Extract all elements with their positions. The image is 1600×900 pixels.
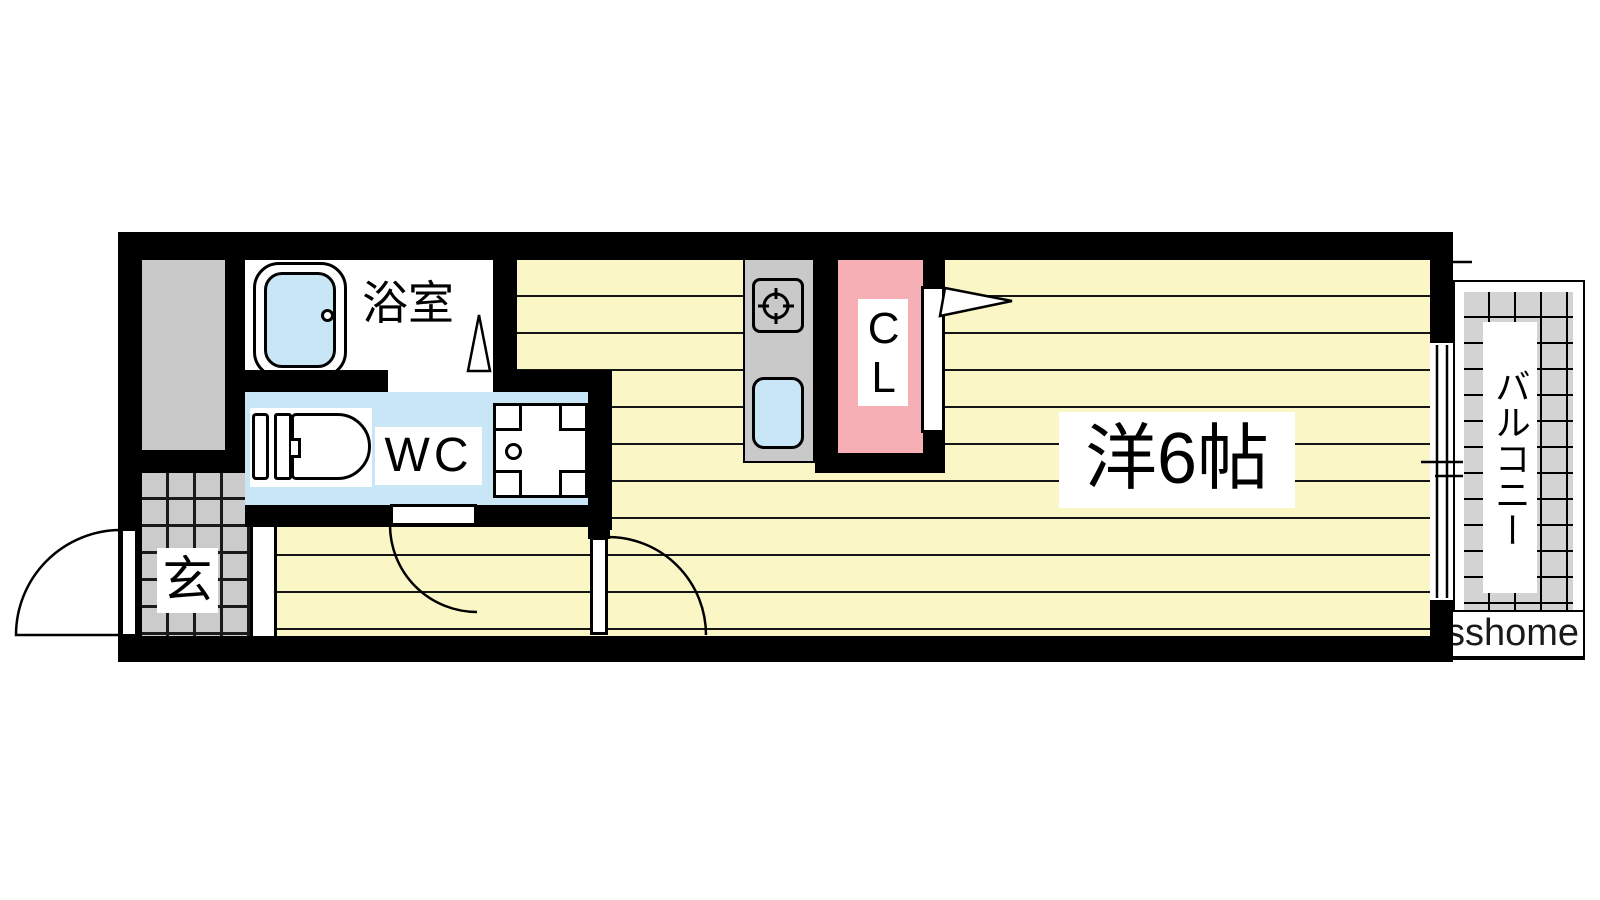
hall-door-leaf	[590, 537, 608, 635]
closet-door-leaf	[921, 286, 945, 433]
wall-closet-right-top	[923, 260, 945, 287]
stove-icon	[752, 278, 804, 333]
wall-closet-bottom	[815, 453, 945, 473]
watermark-text: sshome	[1446, 614, 1579, 654]
wall-top	[118, 232, 1453, 260]
toilet-flush-tab	[291, 438, 301, 458]
bathroom-door-opening	[388, 370, 493, 392]
wc-door-leaf	[390, 504, 477, 526]
front-door-leaf	[120, 528, 138, 637]
washbasin-corner-tr	[559, 403, 588, 431]
wall-bath-bottom	[245, 370, 388, 392]
closet-label-text: CL	[860, 304, 906, 402]
toilet-bowl-icon	[291, 413, 371, 480]
service-space	[142, 260, 225, 450]
balcony-label: バルコニー	[1483, 322, 1537, 593]
sliding-window	[1430, 343, 1453, 600]
toilet-tank-right	[274, 413, 292, 480]
wall-service-right	[225, 260, 245, 473]
western-room-label-text: 洋6帖	[1085, 422, 1269, 498]
washbasin-corner-br	[559, 470, 588, 498]
washbasin-corner-bl	[493, 470, 522, 498]
wall-closet-right-mid	[923, 433, 945, 453]
wall-bottom	[118, 636, 1453, 662]
watermark-box: sshome	[1443, 610, 1585, 658]
wall-right-lower	[1430, 600, 1453, 662]
front-door-swing-arc	[16, 530, 120, 635]
bathroom-label: 浴室	[353, 275, 463, 332]
bathtub-drain-icon	[321, 309, 334, 322]
balcony-label-text: バルコニー	[1491, 368, 1529, 548]
wall-wc-top	[493, 370, 612, 392]
floor-plan: 浴室 WC 玄 CL 洋6帖 バルコニー sshome	[0, 0, 1600, 900]
kitchen-sink-icon	[752, 377, 804, 449]
bathroom-label-text: 浴室	[362, 279, 454, 327]
toilet-tank-left	[252, 413, 269, 480]
entrance-step	[250, 527, 277, 636]
washbasin-faucet-icon	[505, 443, 522, 460]
western-room-label: 洋6帖	[1059, 412, 1295, 508]
wc-label-text: WC	[385, 431, 473, 481]
washbasin-corner-tl	[493, 403, 522, 431]
wall-service-bottom	[142, 450, 245, 473]
wall-closet-left	[815, 260, 838, 473]
wall-right-upper	[1430, 232, 1453, 343]
entrance-label: 玄	[157, 548, 218, 613]
entrance-label-text: 玄	[163, 554, 213, 607]
wc-label: WC	[375, 427, 482, 485]
closet-label: CL	[858, 299, 908, 406]
